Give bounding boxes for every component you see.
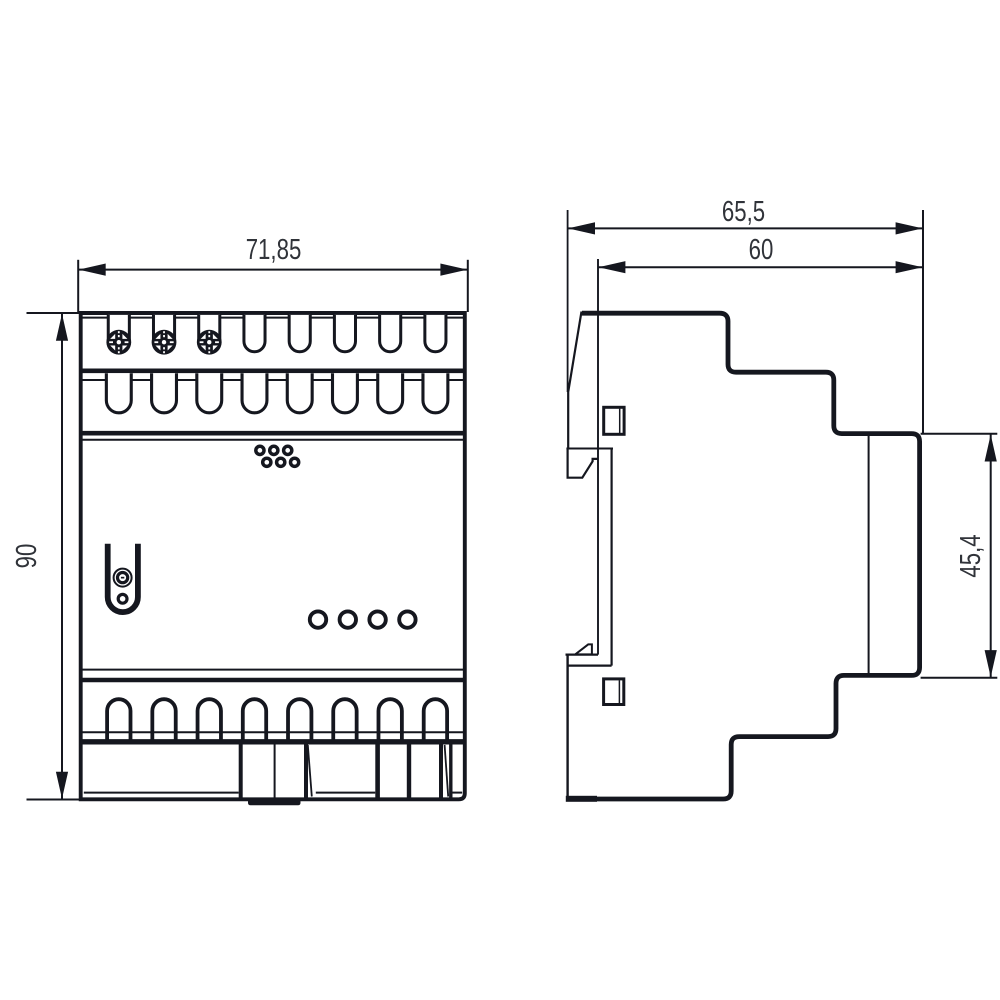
svg-text:45,4: 45,4 <box>956 534 987 577</box>
svg-text:60: 60 <box>749 234 774 265</box>
svg-text:71,85: 71,85 <box>246 234 302 265</box>
svg-text:90: 90 <box>11 544 42 569</box>
svg-text:65,5: 65,5 <box>722 197 765 228</box>
